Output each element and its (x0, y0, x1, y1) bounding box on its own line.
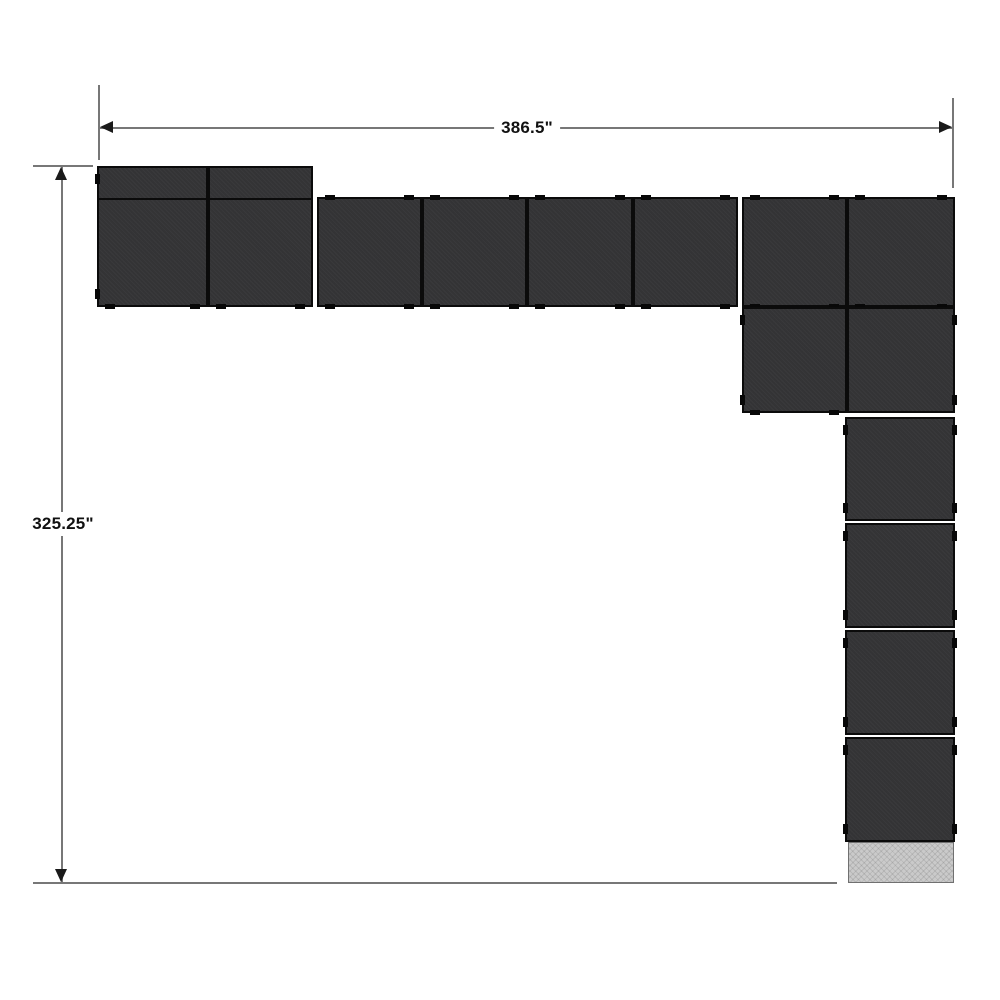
panel-module-column-1 (845, 417, 955, 521)
panel-module-column-3 (845, 630, 955, 735)
connector-tab (843, 503, 848, 513)
connector-tab (829, 410, 839, 415)
height-extension-line-bottom (33, 882, 837, 884)
connector-tab (404, 195, 414, 200)
diagram-canvas: 386.5" 325.25" (0, 0, 1000, 1000)
connector-tab (641, 195, 651, 200)
connector-tab (535, 195, 545, 200)
connector-tab (95, 174, 100, 184)
arrowhead-down-icon (55, 869, 67, 882)
panel-module-column-2 (845, 523, 955, 628)
height-dimension-label: 325.25" (25, 512, 100, 536)
panel-module-row-3 (527, 197, 633, 307)
end-panel (848, 842, 954, 883)
connector-tab (720, 304, 730, 309)
arrowhead-up-icon (55, 167, 67, 180)
connector-tab (829, 195, 839, 200)
connector-tab (325, 304, 335, 309)
connector-tab (430, 304, 440, 309)
module-depth-line (210, 198, 311, 200)
arrowhead-right-icon (939, 121, 952, 133)
panel-module-deep-left-2 (208, 166, 313, 307)
connector-tab (843, 610, 848, 620)
connector-tab (952, 395, 957, 405)
connector-tab (615, 304, 625, 309)
connector-tab (952, 425, 957, 435)
connector-tab (430, 195, 440, 200)
connector-tab (95, 289, 100, 299)
panel-module-deep-left-1 (97, 166, 208, 307)
connector-tab (295, 304, 305, 309)
connector-tab (740, 315, 745, 325)
connector-tab (843, 717, 848, 727)
connector-tab (843, 531, 848, 541)
panel-module-column-4 (845, 737, 955, 842)
connector-tab (216, 304, 226, 309)
panel-module-corner-2 (847, 307, 955, 413)
panel-module-corner-1 (742, 307, 847, 413)
connector-tab (190, 304, 200, 309)
connector-tab (509, 195, 519, 200)
arrowhead-left-icon (100, 121, 113, 133)
connector-tab (843, 824, 848, 834)
connector-tab (952, 638, 957, 648)
connector-tab (535, 304, 545, 309)
connector-tab (404, 304, 414, 309)
connector-tab (952, 717, 957, 727)
connector-tab (843, 638, 848, 648)
connector-tab (952, 610, 957, 620)
connector-tab (750, 410, 760, 415)
connector-tab (105, 304, 115, 309)
panel-module-row-5 (742, 197, 847, 307)
panel-module-row-1 (317, 197, 422, 307)
connector-tab (750, 195, 760, 200)
connector-tab (509, 304, 519, 309)
connector-tab (952, 745, 957, 755)
panel-module-row-6 (847, 197, 955, 307)
width-dimension-label: 386.5" (494, 116, 560, 140)
connector-tab (855, 195, 865, 200)
connector-tab (952, 315, 957, 325)
connector-tab (843, 745, 848, 755)
connector-tab (952, 824, 957, 834)
connector-tab (325, 195, 335, 200)
connector-tab (952, 503, 957, 513)
connector-tab (615, 195, 625, 200)
width-extension-line-right (952, 98, 954, 188)
connector-tab (641, 304, 651, 309)
panel-module-row-4 (633, 197, 738, 307)
connector-tab (843, 425, 848, 435)
panel-module-row-2 (422, 197, 527, 307)
connector-tab (740, 395, 745, 405)
connector-tab (952, 531, 957, 541)
module-depth-line (99, 198, 206, 200)
connector-tab (720, 195, 730, 200)
connector-tab (937, 195, 947, 200)
